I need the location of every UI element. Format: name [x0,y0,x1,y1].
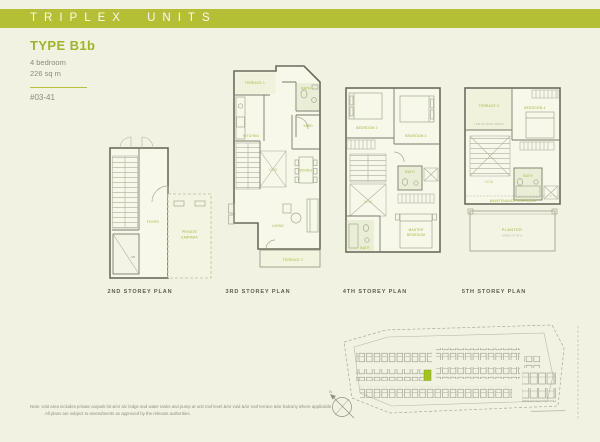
floor-plan-3rd-storey: TERRACE 1 KITCHEN BATH YARD VOID DINING [220,57,332,287]
floor-plan-4th-storey: BEDROOM 2 BEDROOM 3 VOID BATH BATH MASTE [340,80,448,256]
unit-row [360,386,512,398]
room-label-bedroom3: BEDROOM 3 [405,134,426,138]
room-label-void: VOID [485,180,494,184]
unit-row [356,369,424,381]
room-label-yard: YARD [303,124,313,128]
header-band: TRIPLEX UNITS [0,9,600,28]
room-label-terrace3: TERRACE 3 [479,104,499,108]
caption-5th-storey: 5TH STOREY PLAN [439,289,549,295]
highlighted-unit [424,370,431,381]
db-label: DB [131,255,135,259]
unit-cluster [522,372,556,386]
unit-row [524,356,540,368]
north-label: N [329,389,332,394]
unit-cluster [522,388,556,402]
room-label-carpark-2: CARPARK [181,236,199,240]
floor-plan-2nd-storey: FOYER DB PRIVATE CARPARK [95,132,215,290]
unit-area: 226 sq m [30,68,95,79]
roof-line-note: LINE OF ROOF ABOVE [474,123,504,126]
footnote-line2: All plans are subject to amendments as a… [45,411,340,418]
caption-2nd-storey: 2ND STOREY PLAN [85,289,195,295]
room-label-bedroom4: BEDROOM 4 [524,106,545,110]
floor-plan-5th-storey: TERRACE 3 LINE OF ROOF ABOVE BEDROOM 4 V… [456,78,576,260]
unit-type: TYPE B1b [30,38,95,53]
unit-specs: 4 bedroom 226 sq m [30,57,95,80]
room-label-bedroom2: BEDROOM 2 [356,126,377,130]
divider-line [30,87,87,88]
site-plan: N [328,316,584,426]
unit-row [356,352,432,364]
room-label-carpark-1: PRIVATE [182,230,197,234]
room-label-terrace1: TERRACE 1 [245,81,265,85]
room-label-master-2: BEDROOM [407,233,425,237]
caption-3rd-storey: 3RD STOREY PLAN [203,289,313,295]
unit-row [436,367,520,379]
caption-4th-storey: 4TH STOREY PLAN [320,289,430,295]
room-label-foyer: FOYER [147,220,160,224]
room-label-bath: BATH [523,174,533,178]
room-label-master-1: MASTER [409,228,424,232]
room-label-dining: DINING [300,169,313,173]
brochure-page: TRIPLEX UNITS TYPE B1b 4 bedroom 226 sq … [0,0,600,442]
room-label-void: VOID [364,200,373,204]
road-label-mark [531,411,565,412]
unit-number: #03-41 [30,93,95,102]
footnote-line1: Note: Unit area includes private carpark… [30,404,340,411]
footnote: Note: Unit area includes private carpark… [30,404,340,418]
room-label-maintenance: MAINTENANCE CORRIDOR [490,199,537,203]
unit-info-block: TYPE B1b 4 bedroom 226 sq m #03-41 [30,38,95,102]
unit-bedrooms: 4 bedroom [30,57,95,68]
page-title: TRIPLEX UNITS [0,9,600,28]
room-label-bath-upper: BATH [405,170,415,174]
room-label-living: LIVING [272,224,284,228]
planter-sub-label: (OPEN TO SKY) [502,235,522,238]
room-label-terrace2: TERRACE 2 [283,258,303,262]
room-label-kitchen: KITCHEN [243,134,259,138]
room-label-bath-lower: BATH [360,246,370,250]
room-label-void: VOID [269,168,278,172]
room-label-planter: PLANTER [502,227,523,232]
entry-door-arcs [120,137,153,148]
unit-row [436,348,520,360]
room-label-bath: BATH [301,87,311,91]
